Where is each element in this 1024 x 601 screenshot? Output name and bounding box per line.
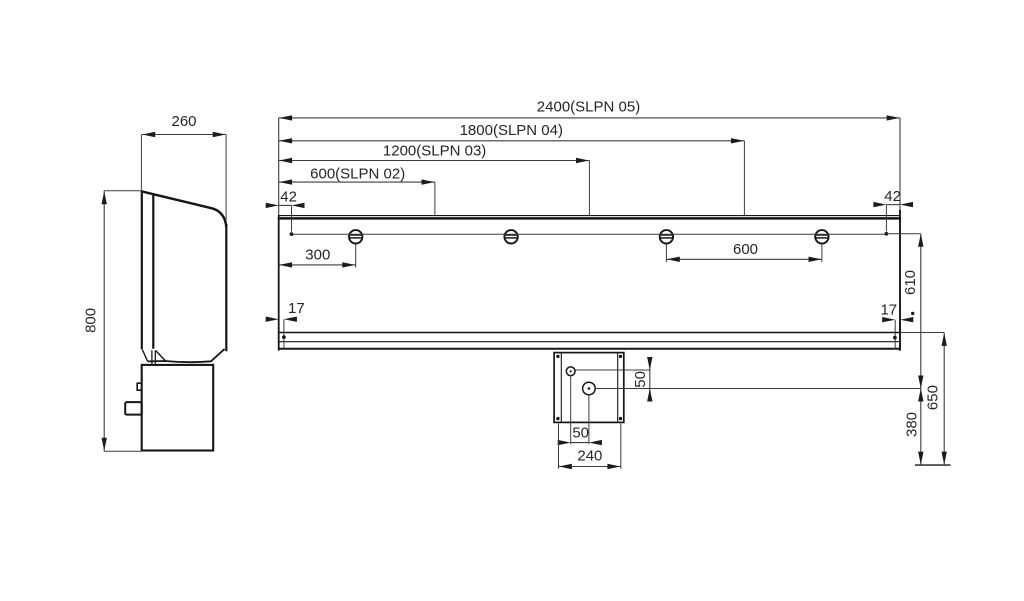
- svg-text:240: 240: [577, 448, 602, 465]
- svg-text:2400(SLPN 05): 2400(SLPN 05): [537, 98, 640, 115]
- svg-text:1200(SLPN 03): 1200(SLPN 03): [383, 143, 486, 160]
- svg-text:17: 17: [288, 300, 305, 317]
- svg-text:1800(SLPN 04): 1800(SLPN 04): [460, 122, 563, 139]
- svg-text:42: 42: [884, 188, 901, 205]
- svg-text:600(SLPN 02): 600(SLPN 02): [310, 166, 405, 183]
- svg-text:300: 300: [305, 247, 330, 264]
- svg-text:50: 50: [572, 424, 589, 441]
- svg-text:600: 600: [733, 241, 758, 258]
- svg-text:610: 610: [902, 270, 919, 295]
- svg-text:650: 650: [924, 385, 941, 410]
- svg-text:260: 260: [171, 113, 196, 130]
- svg-text:800: 800: [83, 308, 100, 333]
- svg-text:50: 50: [632, 371, 649, 388]
- svg-text:42: 42: [280, 188, 297, 205]
- svg-text:380: 380: [903, 412, 920, 437]
- svg-text:17: 17: [880, 302, 897, 319]
